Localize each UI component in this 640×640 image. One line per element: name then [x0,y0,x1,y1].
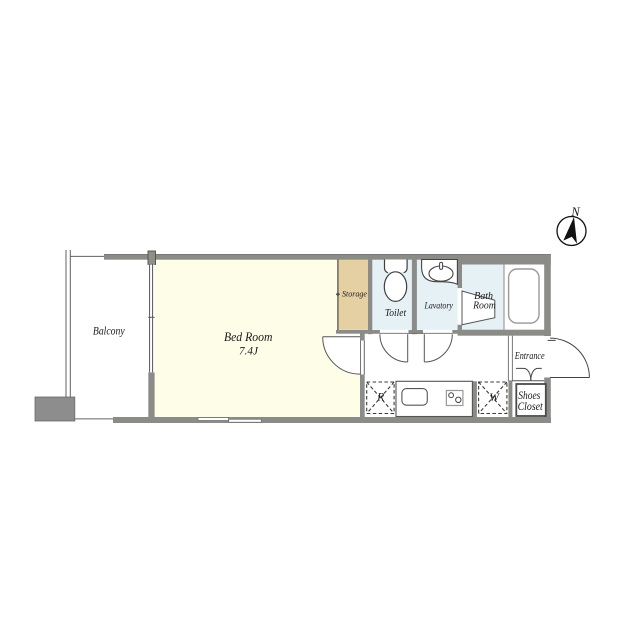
svg-text:Room: Room [472,301,496,312]
svg-text:Lavatory: Lavatory [424,302,454,312]
svg-text:Closet: Closet [518,401,544,413]
svg-text:Balcony: Balcony [93,324,125,338]
svg-text:Toilet: Toilet [385,308,407,319]
svg-text:N: N [570,205,580,219]
svg-text:R: R [376,392,384,404]
svg-text:Bed Room: Bed Room [224,329,273,344]
svg-text:7.4J: 7.4J [239,344,259,358]
svg-text:W: W [489,392,500,404]
svg-text:Entrance: Entrance [514,351,545,362]
svg-text:Storage: Storage [342,290,367,299]
